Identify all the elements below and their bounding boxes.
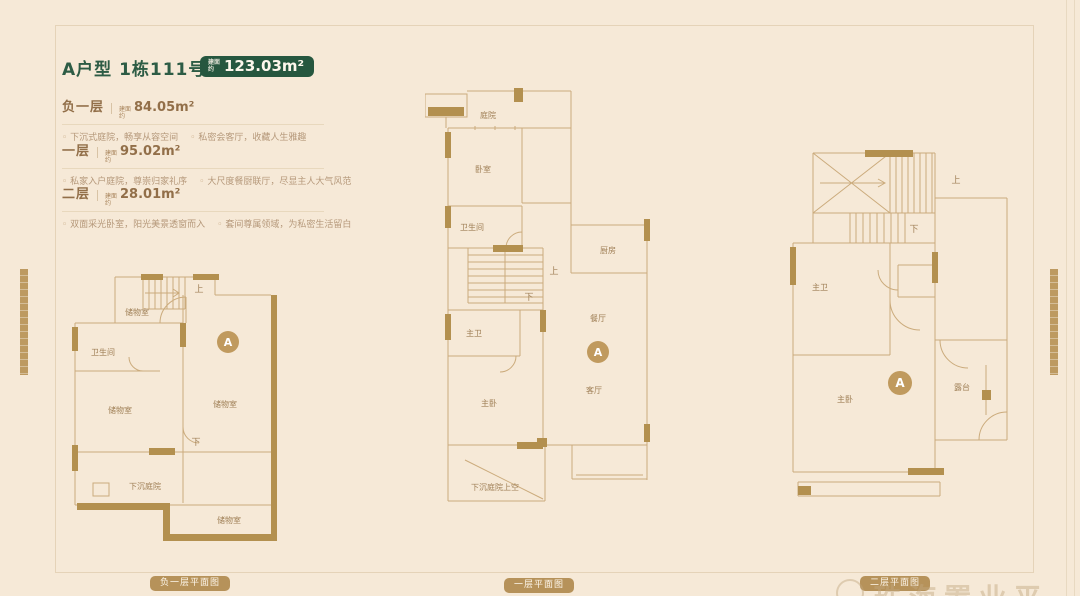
room-label: 储物室 — [217, 515, 241, 525]
page-title: A户型 1栋111号 — [62, 55, 206, 80]
floorplan-page: A户型 1栋111号 建面约 123.03m² 负一层 建面约 84.05m² … — [0, 0, 1080, 596]
room-label: 餐厅 — [590, 314, 606, 323]
floorplan-first: 庭院 卧室 卫生间 厨房 餐厅 客厅 主卫 主卧 下沉庭院上空 上 下 A — [425, 88, 690, 508]
caption-first-plan: 一层平面图 — [504, 578, 574, 593]
area-value: 123.03m² — [224, 59, 304, 74]
basement-room-labels: 储物室 卫生间 储物室 储物室 下沉庭院 储物室 上 下 — [91, 284, 241, 525]
unit-marker: A — [217, 331, 239, 353]
second-room-labels: 主卫 主卧 露台 上 下 — [812, 175, 970, 404]
area-prefix: 建面约 — [105, 151, 118, 164]
caption-basement-plan: 负一层平面图 — [150, 576, 230, 591]
section-second-floor: 二层 建面约 28.01m² 双面采光卧室，阳光美景透窗而入 套间尊属领域，为私… — [62, 183, 324, 230]
first-room-labels: 庭院 卧室 卫生间 厨房 餐厅 客厅 主卫 主卧 下沉庭院上空 上 下 — [460, 110, 616, 492]
room-label: 客厅 — [586, 385, 602, 395]
unit-marker: A — [587, 341, 609, 363]
section-first-floor: 一层 建面约 95.02m² 私家入户庭院，尊崇归家礼序 大尺度餐厨联厅，尽显主… — [62, 140, 324, 187]
area-prefix: 建面约 — [105, 194, 118, 207]
feature-bullet: 双面采光卧室，阳光美景透窗而入 — [62, 217, 205, 230]
floor-name: 一层 — [62, 140, 90, 159]
stair-up-label: 上 — [951, 175, 960, 186]
watermark-text: 珠海置业平台 — [874, 577, 1080, 596]
room-label: 下沉庭院上空 — [471, 482, 519, 492]
basement-thick-walls — [72, 274, 277, 541]
section-basement: 负一层 建面约 84.05m² 下沉式庭院，畅享从容空间 私密会客厅，收藏人生雅… — [62, 96, 324, 143]
left-ruler-bar — [20, 269, 28, 375]
second-walls — [793, 153, 1007, 496]
floorplan-basement: 储物室 卫生间 储物室 储物室 下沉庭院 储物室 上 下 A — [65, 265, 305, 550]
area-prefix: 建面约 — [208, 60, 222, 73]
room-label: 厨房 — [600, 245, 616, 255]
room-label: 主卫 — [812, 282, 828, 292]
rule — [62, 168, 324, 169]
area-prefix: 建面约 — [119, 107, 132, 120]
watermark: 珠海置业平台 — [836, 577, 1080, 596]
stair-down-label: 下 — [909, 225, 918, 235]
room-label: 主卧 — [837, 394, 853, 404]
basement-walls — [75, 277, 271, 505]
floorplan-second: 主卫 主卧 露台 上 下 A — [790, 150, 1020, 510]
divider — [97, 190, 98, 201]
edge-line — [1066, 0, 1067, 596]
rule — [62, 211, 324, 212]
unit-marker: A — [888, 371, 912, 395]
stair-up-label: 上 — [194, 284, 203, 295]
floor-name: 二层 — [62, 183, 90, 202]
floor-name: 负一层 — [62, 96, 104, 115]
divider — [111, 103, 112, 114]
unit-marker-letter: A — [224, 336, 233, 349]
floor-area: 28.01m² — [120, 187, 180, 202]
first-walls — [425, 91, 647, 501]
room-label: 储物室 — [108, 405, 132, 415]
divider — [97, 147, 98, 158]
stair-up-label: 上 — [549, 266, 558, 277]
room-label: 储物室 — [213, 399, 237, 409]
room-label: 卫生间 — [460, 222, 484, 232]
room-label: 储物室 — [125, 307, 149, 317]
room-label: 露台 — [954, 382, 970, 392]
floor-area: 95.02m² — [120, 144, 180, 159]
room-label: 庭院 — [480, 110, 496, 120]
floor-area: 84.05m² — [134, 100, 194, 115]
room-label: 主卫 — [466, 328, 482, 338]
stair-down-label: 下 — [524, 293, 533, 303]
rule — [62, 124, 324, 125]
right-ruler-bar — [1050, 269, 1058, 375]
unit-marker-letter: A — [895, 376, 905, 390]
room-label: 卧室 — [475, 164, 491, 174]
unit-marker-letter: A — [594, 346, 603, 359]
feature-bullet: 套间尊属领域，为私密生活留白 — [217, 217, 351, 230]
room-label: 卫生间 — [91, 347, 115, 357]
edge-line — [1074, 0, 1075, 596]
watermark-logo-icon — [836, 579, 864, 596]
total-area-badge: 建面约 123.03m² — [200, 56, 314, 77]
room-label: 下沉庭院 — [129, 481, 161, 491]
stair-down-label: 下 — [191, 438, 200, 448]
room-label: 主卧 — [481, 398, 497, 408]
